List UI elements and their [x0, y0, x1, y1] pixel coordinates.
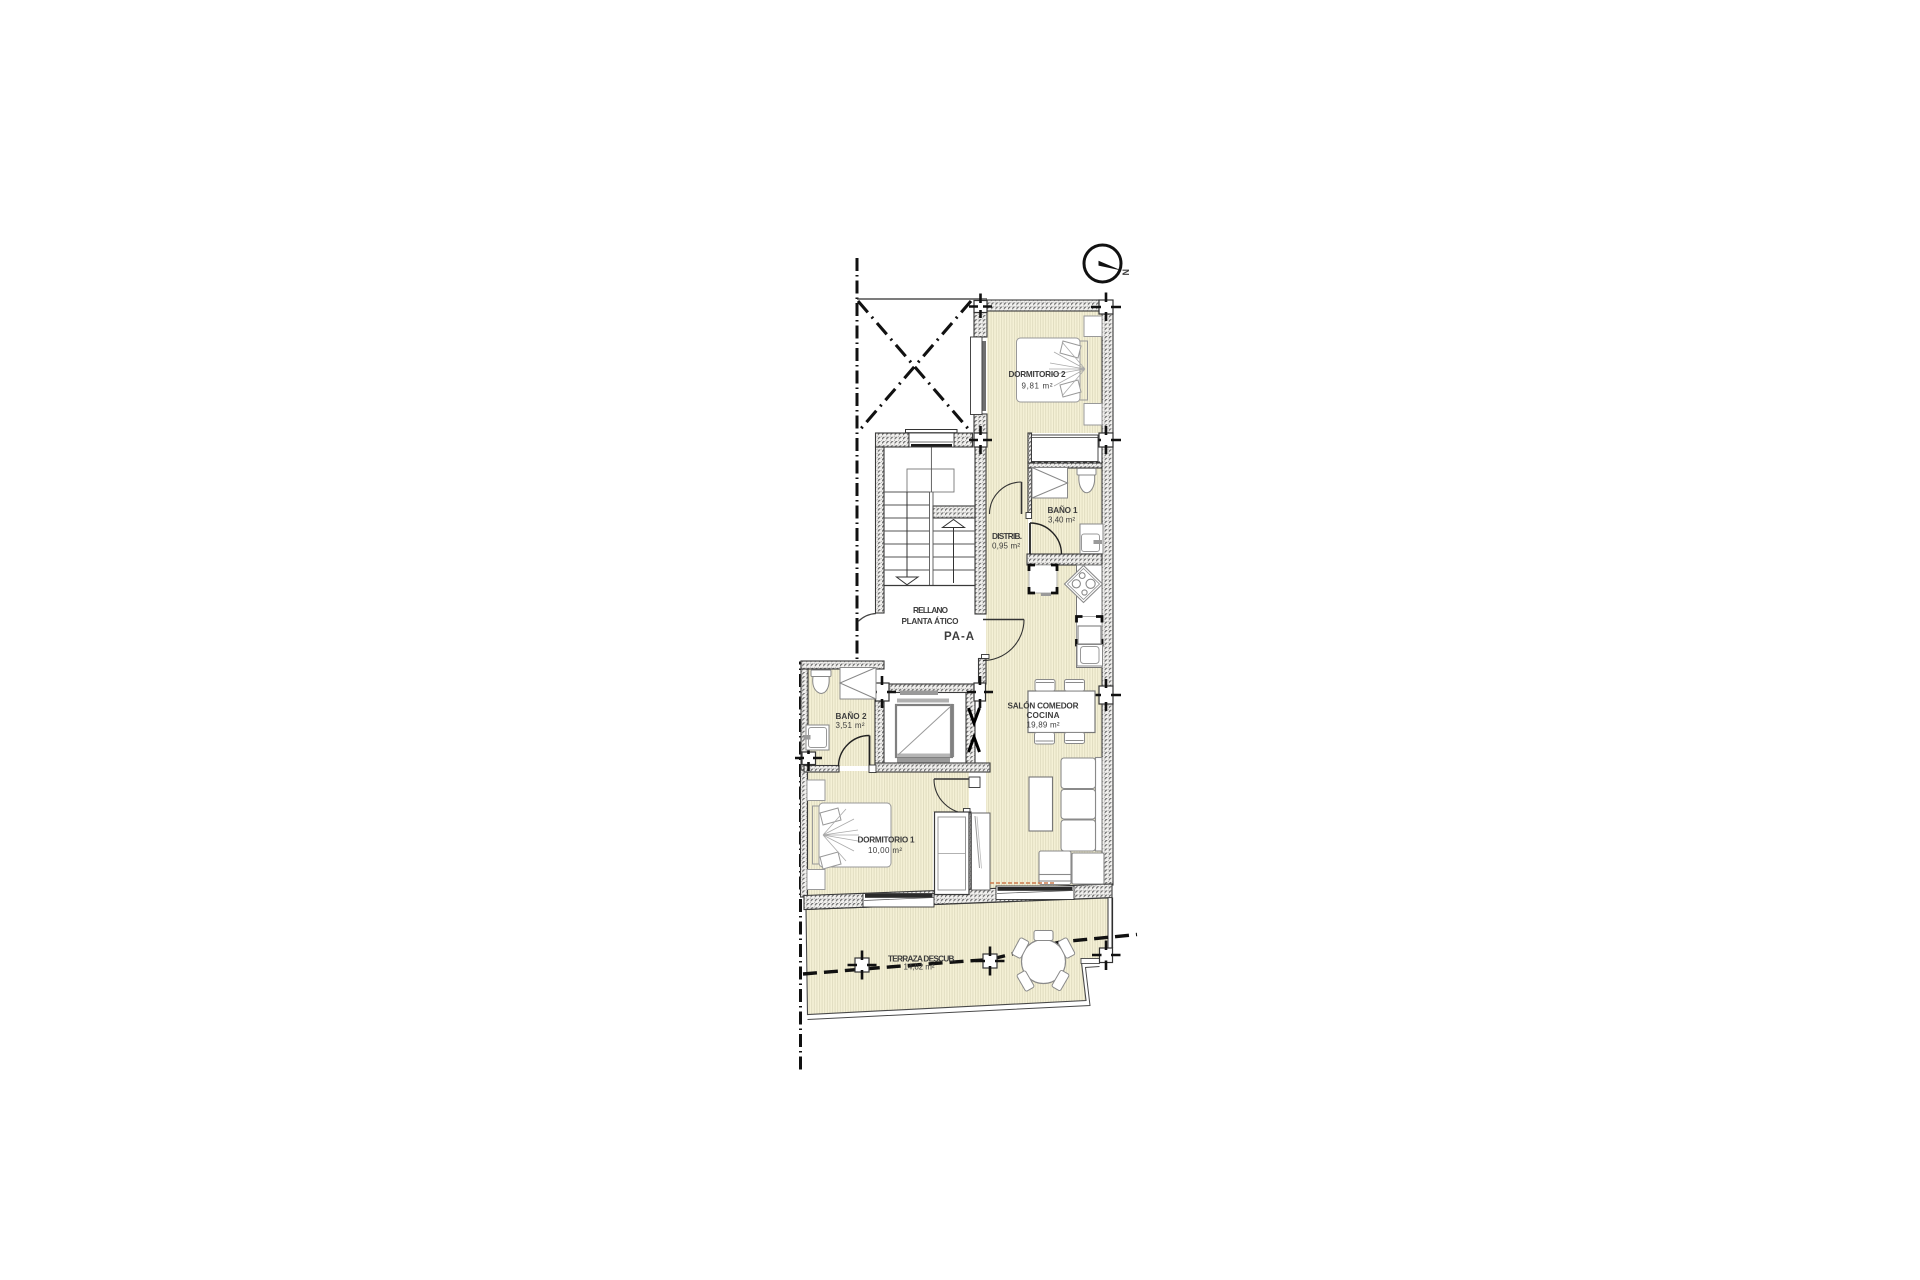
svg-text:PA-A: PA-A — [944, 631, 974, 643]
svg-text:BAÑO 1: BAÑO 1 — [1048, 505, 1078, 515]
svg-text:DORMITORIO 1: DORMITORIO 1 — [858, 836, 915, 845]
svg-text:DISTRIB.: DISTRIB. — [992, 532, 1022, 541]
svg-text:PLANTA ÁTICO: PLANTA ÁTICO — [902, 616, 960, 626]
svg-text:0,95 m²: 0,95 m² — [992, 542, 1020, 551]
svg-text:BAÑO 2: BAÑO 2 — [836, 711, 867, 721]
svg-text:14,82 m²: 14,82 m² — [904, 963, 935, 972]
svg-text:COCINA: COCINA — [1027, 711, 1060, 720]
svg-text:SALÓN COMEDOR: SALÓN COMEDOR — [1008, 700, 1079, 711]
svg-text:3,51 m²: 3,51 m² — [836, 721, 865, 730]
svg-text:N: N — [1121, 269, 1131, 276]
svg-text:19,89 m²: 19,89 m² — [1027, 721, 1060, 730]
svg-text:10,00 m²: 10,00 m² — [868, 846, 902, 855]
svg-text:DORMITORIO 2: DORMITORIO 2 — [1009, 370, 1066, 379]
svg-text:3,40 m²: 3,40 m² — [1048, 516, 1075, 525]
svg-text:RELLANO: RELLANO — [913, 606, 949, 615]
svg-text:9,81 m²: 9,81 m² — [1022, 382, 1053, 391]
